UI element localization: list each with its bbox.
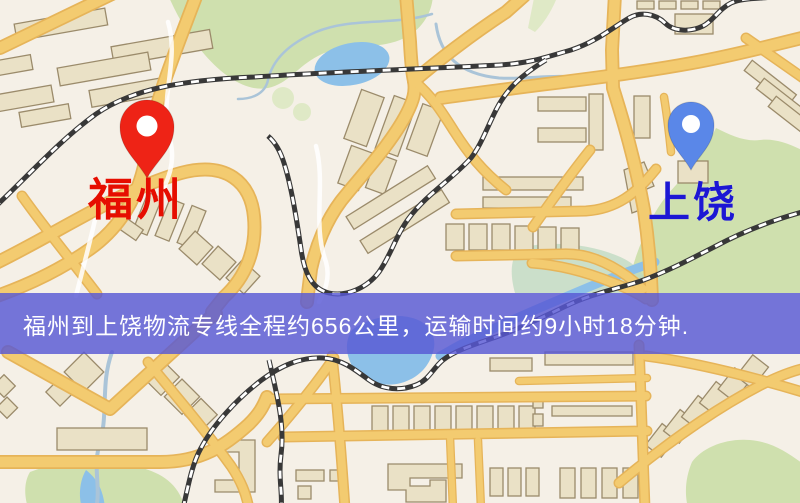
route-info-banner: 福州到上饶物流专线全程约656公里，运输时间约9小时18分钟. <box>0 293 800 354</box>
destination-city-label: 上饶 <box>648 182 738 224</box>
origin-city-label: 福州 <box>88 177 184 222</box>
map-view[interactable]: 福州 上饶 福州到上饶物流专线全程约656公里，运输时间约9小时18分钟. <box>0 0 800 503</box>
route-info-text: 福州到上饶物流专线全程约656公里，运输时间约9小时18分钟. <box>23 307 689 341</box>
map-canvas[interactable] <box>0 0 800 503</box>
